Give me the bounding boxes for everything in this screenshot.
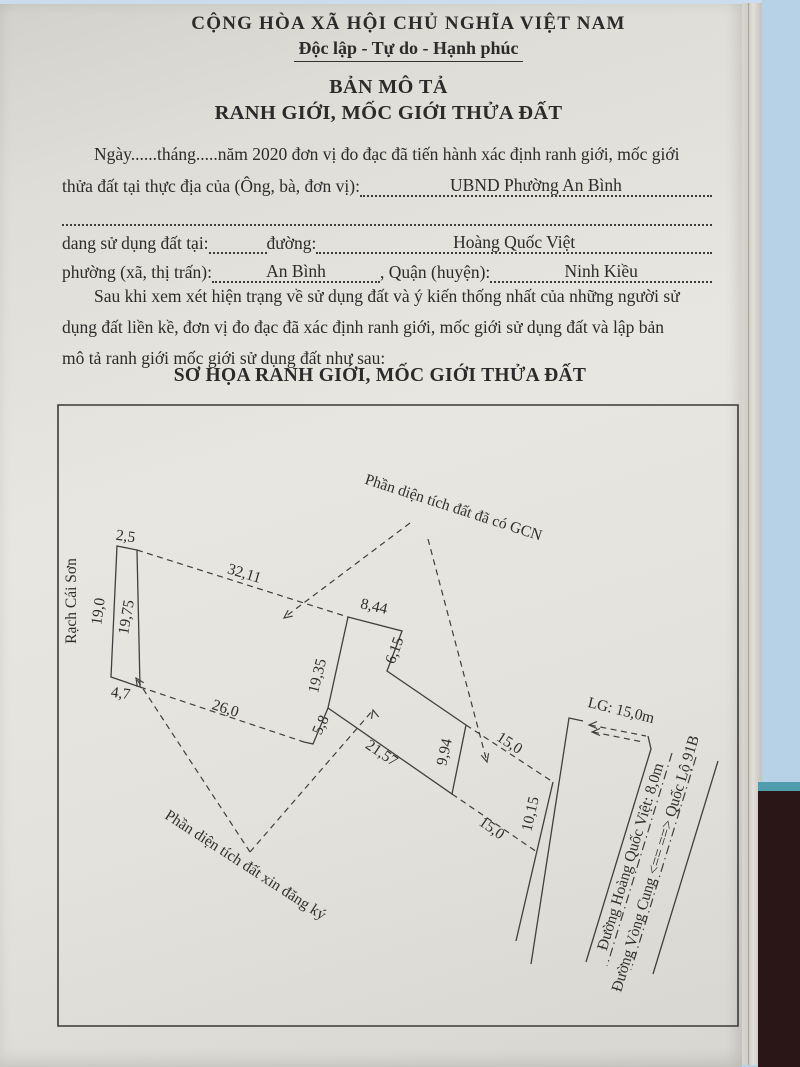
area-requested-label: Phần diện tích đất xin đăng ký: [162, 807, 330, 924]
dim-19-75: 19,75: [115, 598, 138, 636]
intro-line-street: dang sử dụng đất tại: đường: Hoàng Quốc …: [62, 226, 712, 255]
dotted-leader: UBND Phường An Bình: [360, 171, 712, 197]
background-dark-surface: [758, 791, 800, 1067]
intro-line-date: Ngày......tháng.....năm 2020 đơn vị đo đ…: [62, 140, 712, 169]
dotted-leader: An Bình: [212, 257, 380, 283]
document-title-line2: RANH GIỚI, MỐC GIỚI THỬA ĐẤT: [35, 102, 742, 125]
document-page: CỘNG HÒA XÃ HỘI CHỦ NGHĨA VIỆT NAM Độc l…: [0, 4, 742, 1067]
dim-19-35: 19,35: [305, 657, 330, 695]
intro-section: Ngày......tháng.....năm 2020 đơn vị đo đ…: [62, 140, 712, 283]
dim-32-11: 32,11: [225, 561, 263, 587]
country-title: CỘNG HÒA XÃ HỘI CHỦ NGHĨA VIỆT NAM: [100, 13, 717, 35]
land-use-label: dang sử dụng đất tại:: [62, 233, 209, 254]
dim-19-0: 19,0: [88, 597, 109, 626]
dim-6-15: 6,15: [382, 635, 407, 667]
area-gcn-label: Phần diện tích đất đã có GCN: [363, 471, 544, 544]
ward-value: An Bình: [212, 261, 380, 282]
national-motto: Độc lập - Tự do - Hạnh phúc: [100, 38, 717, 62]
owner-value: UBND Phường An Bình: [360, 175, 712, 196]
survey-sketch: 2,5 19,0 19,75 4,7 32,11 26,0 8,44 6,15 …: [40, 394, 760, 1044]
ward-label: phường (xã, thị trấn):: [62, 262, 212, 283]
district-label: , Quận (huyện):: [380, 262, 490, 283]
street-label: đường:: [267, 233, 317, 254]
dim-15-0-lower: 15,0: [476, 814, 508, 844]
agreement-line2: dụng đất liền kề, đơn vị đo đạc đã xác đ…: [62, 312, 716, 343]
dim-9-94: 9,94: [433, 737, 455, 767]
intro-line-owner: thửa đất tại thực địa của (Ông, bà, đơn …: [62, 169, 712, 198]
dotted-leader: Hoàng Quốc Việt: [316, 228, 712, 254]
dotted-leader: [62, 200, 712, 226]
document-title-line1: BẢN MÔ TẢ: [35, 76, 742, 99]
intro-line-ward: phường (xã, thị trấn): An Bình , Quận (h…: [62, 254, 712, 283]
owner-label: thửa đất tại thực địa của (Ông, bà, đơn …: [62, 176, 360, 197]
dotted-leader: [209, 228, 267, 254]
agreement-paragraph: Sau khi xem xét hiện trạng về sử dụng đấ…: [62, 281, 716, 374]
sketch-heading: SƠ HỌA RANH GIỚI, MỐC GIỚI THỬA ĐẤT: [0, 365, 742, 387]
leader-gcn-left: [285, 523, 410, 617]
boundary-dashed-32-11: [137, 550, 348, 617]
dim-2-5: 2,5: [115, 527, 137, 547]
dim-26-0: 26,0: [210, 696, 241, 721]
waterway-label: Rạch Cái Sơn: [63, 558, 80, 644]
dim-10-15: 10,15: [518, 795, 542, 833]
leader-gcn-right: [428, 539, 487, 762]
dim-15-0-upper: 15,0: [493, 729, 525, 758]
arrowhead-requested-right: [371, 710, 378, 719]
dim-4-7: 4,7: [110, 684, 132, 704]
national-header: CỘNG HÒA XÃ HỘI CHỦ NGHĨA VIỆT NAM Độc l…: [100, 13, 717, 62]
dim-5-8: 5,8: [309, 712, 333, 737]
photographed-document: CỘNG HÒA XÃ HỘI CHỦ NGHĨA VIỆT NAM Độc l…: [0, 0, 800, 1067]
dotted-leader: Ninh Kiều: [490, 257, 712, 283]
intro-line-blank: [62, 197, 712, 226]
national-motto-text: Độc lập - Tự do - Hạnh phúc: [294, 38, 522, 62]
dim-21-57: 21,57: [362, 736, 401, 770]
dim-8-44: 8,44: [359, 595, 389, 618]
agreement-line1: Sau khi xem xét hiện trạng về sử dụng đấ…: [62, 281, 716, 312]
street-value: Hoàng Quốc Việt: [316, 232, 712, 253]
district-value: Ninh Kiều: [490, 261, 712, 282]
document-title: BẢN MÔ TẢ RANH GIỚI, MỐC GIỚI THỬA ĐẤT: [0, 76, 742, 125]
